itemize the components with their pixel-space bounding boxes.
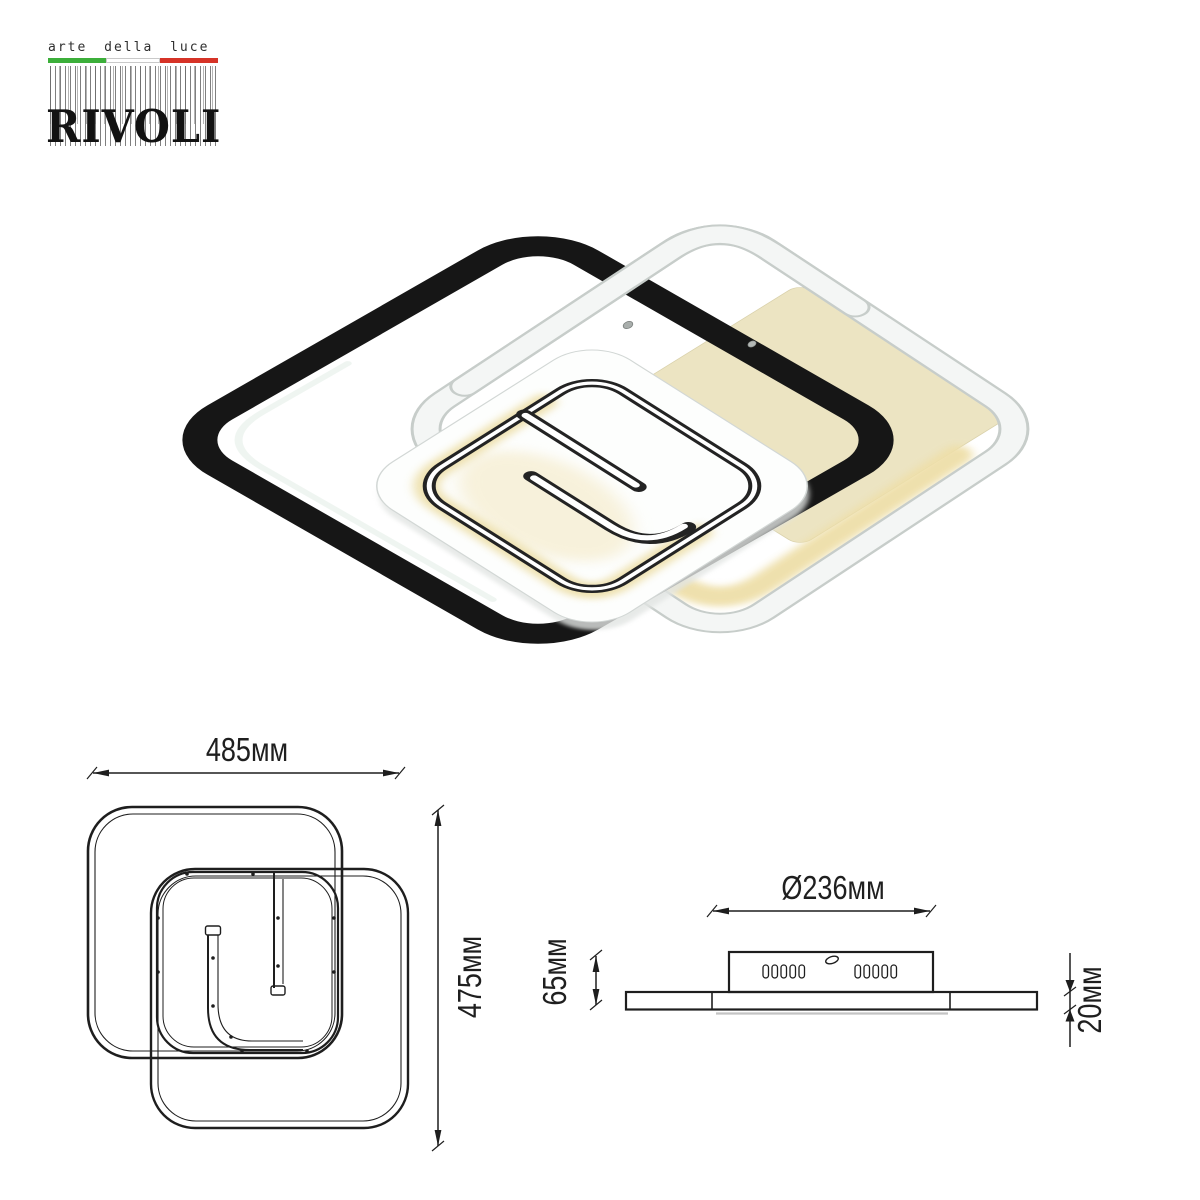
top-view-inner-square bbox=[157, 872, 338, 1053]
product-illustration: 485мм 475мм Ø236мм bbox=[0, 0, 1200, 1200]
product-photo bbox=[172, 218, 1040, 650]
top-view-white-frame bbox=[151, 869, 408, 1128]
product-sheet: arte della luce RIVOLI bbox=[0, 0, 1200, 1200]
top-view-spiral-channels bbox=[206, 873, 304, 1050]
top-view-screw-dots bbox=[156, 872, 336, 1053]
side-view-panel-bar bbox=[626, 992, 1037, 1014]
side-height-dimension: 65мм bbox=[538, 938, 602, 1010]
side-height-dimension-label: 65мм bbox=[538, 938, 574, 1005]
canopy-hole bbox=[825, 955, 839, 965]
height-dimension: 475мм bbox=[432, 805, 489, 1151]
top-view-black-frame bbox=[88, 807, 342, 1058]
thickness-dimension: 20мм bbox=[1064, 953, 1109, 1047]
diameter-dimension: Ø236мм bbox=[707, 871, 936, 917]
screw-hole bbox=[622, 320, 634, 330]
top-view-drawing: 485мм 475мм bbox=[87, 733, 489, 1151]
height-dimension-label: 475мм bbox=[453, 936, 489, 1018]
side-view-drawing: Ø236мм bbox=[538, 871, 1109, 1047]
diameter-dimension-label: Ø236мм bbox=[781, 871, 884, 907]
side-view-canopy-box bbox=[729, 952, 933, 992]
width-dimension-label: 485мм bbox=[206, 733, 288, 769]
side-view-slots bbox=[763, 965, 897, 978]
width-dimension: 485мм bbox=[87, 733, 405, 779]
thickness-dimension-label: 20мм bbox=[1073, 966, 1109, 1033]
